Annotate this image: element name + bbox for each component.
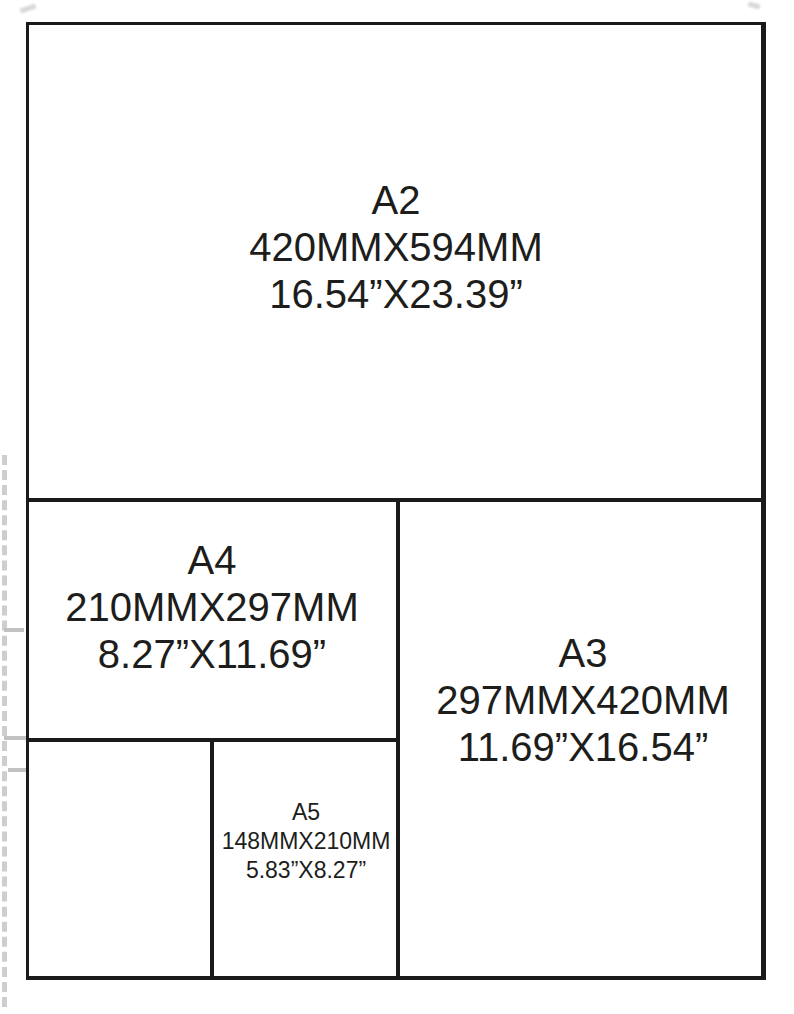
a2-size-inches: 16.54”X23.39” [26, 271, 766, 318]
a2-size-mm: 420MMX594MM [26, 224, 766, 271]
top-right-smudge-artifact [748, 2, 761, 10]
a2-label: A2 420MMX594MM 16.54”X23.39” [26, 177, 766, 318]
top-left-smudge-artifact [20, 4, 37, 14]
a3-size-name: A3 [400, 630, 766, 677]
a3-size-inches: 11.69”X16.54” [400, 724, 766, 771]
left-edge-tick-artifact [8, 768, 26, 772]
a4-size-name: A4 [26, 537, 398, 584]
a5-size-mm: 148MMX210MM [214, 827, 398, 856]
paper-size-diagram: A2 420MMX594MM 16.54”X23.39” A4 210MMX29… [0, 0, 794, 1014]
a5-label: A5 148MMX210MM 5.83”X8.27” [214, 798, 398, 885]
a4-label: A4 210MMX297MM 8.27”X11.69” [26, 537, 398, 678]
a5-size-name: A5 [214, 798, 398, 827]
a4-size-mm: 210MMX297MM [26, 584, 398, 631]
left-edge-tick-artifact [4, 628, 24, 632]
a2-size-name: A2 [26, 177, 766, 224]
a5-size-inches: 5.83”X8.27” [214, 856, 398, 885]
a3-size-mm: 297MMX420MM [400, 677, 766, 724]
a3-label: A3 297MMX420MM 11.69”X16.54” [400, 630, 766, 771]
a4-size-inches: 8.27”X11.69” [26, 631, 398, 678]
left-edge-dashed-artifact [2, 455, 7, 1007]
left-edge-tick-artifact [4, 736, 27, 740]
